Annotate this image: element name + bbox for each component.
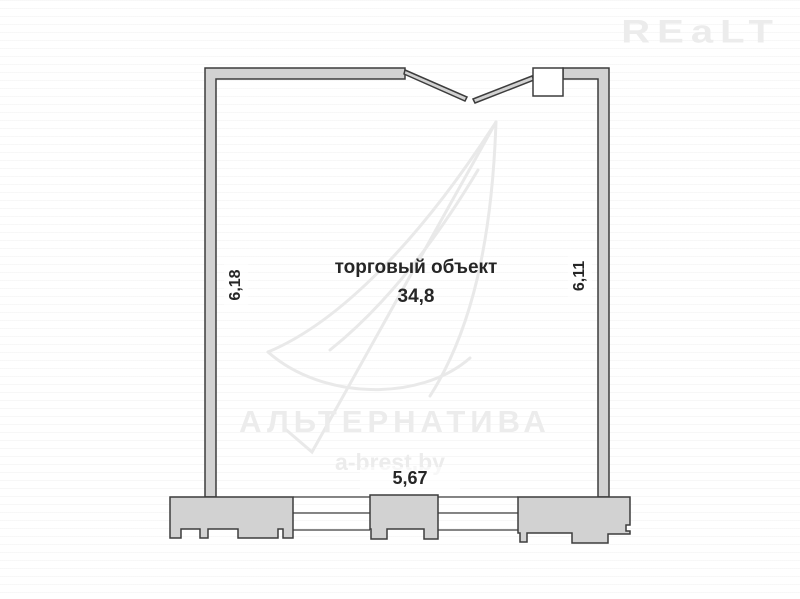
- sail-lower-curve: [268, 352, 470, 390]
- door-leaf-right: [473, 76, 534, 103]
- bottom-right-pier: [518, 497, 630, 543]
- center-window-pier: [370, 495, 438, 539]
- floor-plan-page: REaLT: [0, 0, 800, 599]
- room-area-value: 34,8: [266, 286, 566, 308]
- dimension-right-wall: 6,11: [568, 252, 592, 300]
- door-leaf-left: [404, 70, 467, 101]
- door-frame-box: [533, 68, 563, 96]
- room-type-label: торговый объект: [266, 257, 566, 279]
- sail-left-curve: [268, 122, 496, 352]
- agency-watermark-text: АЛЬТЕРНАТИВА: [0, 404, 790, 440]
- dimension-bottom-wall: 5,67: [360, 467, 460, 489]
- bottom-left-pier: [170, 497, 293, 538]
- dimension-left-wall: 6,18: [224, 261, 248, 309]
